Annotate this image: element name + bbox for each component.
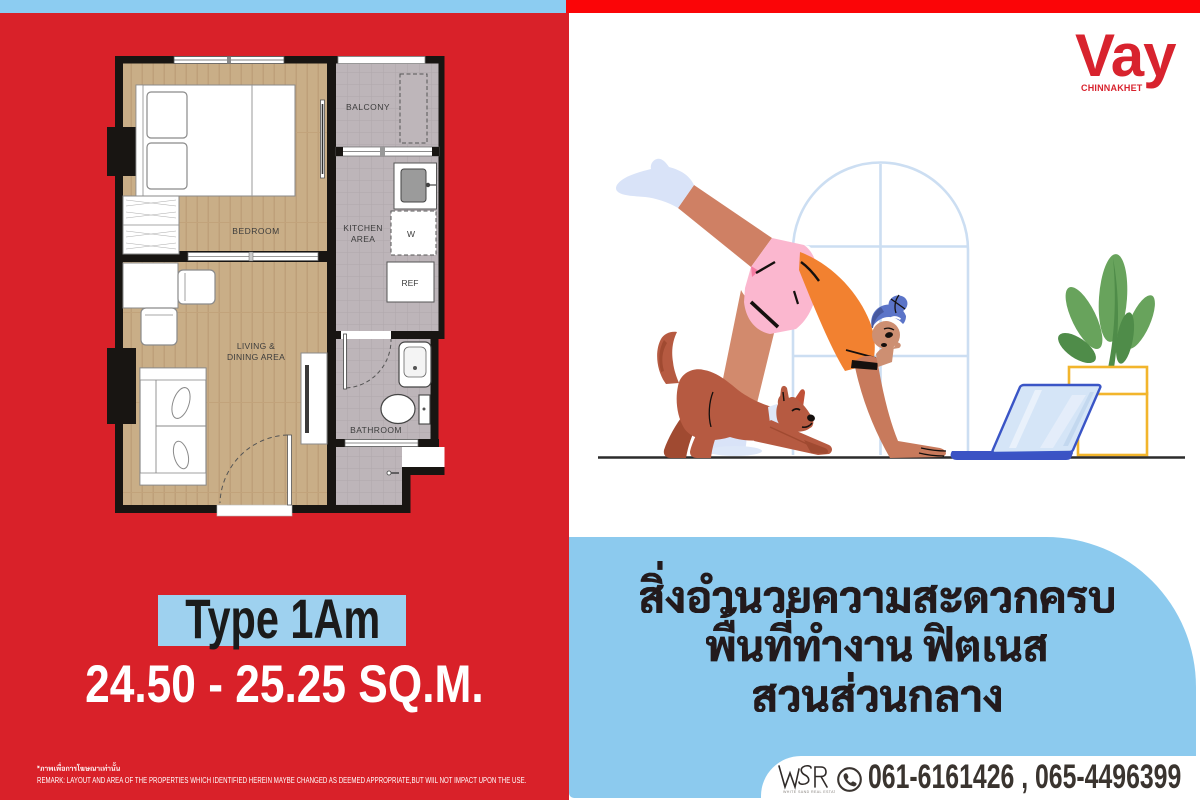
svg-text:DINING AREA: DINING AREA (227, 352, 285, 362)
svg-text:BALCONY: BALCONY (346, 102, 390, 112)
svg-text:REF: REF (402, 278, 419, 288)
svg-text:W: W (407, 229, 415, 239)
svg-text:BATHROOM: BATHROOM (350, 425, 402, 435)
svg-text:AREA: AREA (351, 234, 375, 244)
svg-text:LIVING &: LIVING & (237, 341, 275, 351)
svg-text:BEDROOM: BEDROOM (232, 226, 279, 236)
svg-text:KITCHEN: KITCHEN (343, 223, 382, 233)
svg-text:WHITE SAND REAL ESTATE: WHITE SAND REAL ESTATE (783, 790, 835, 794)
